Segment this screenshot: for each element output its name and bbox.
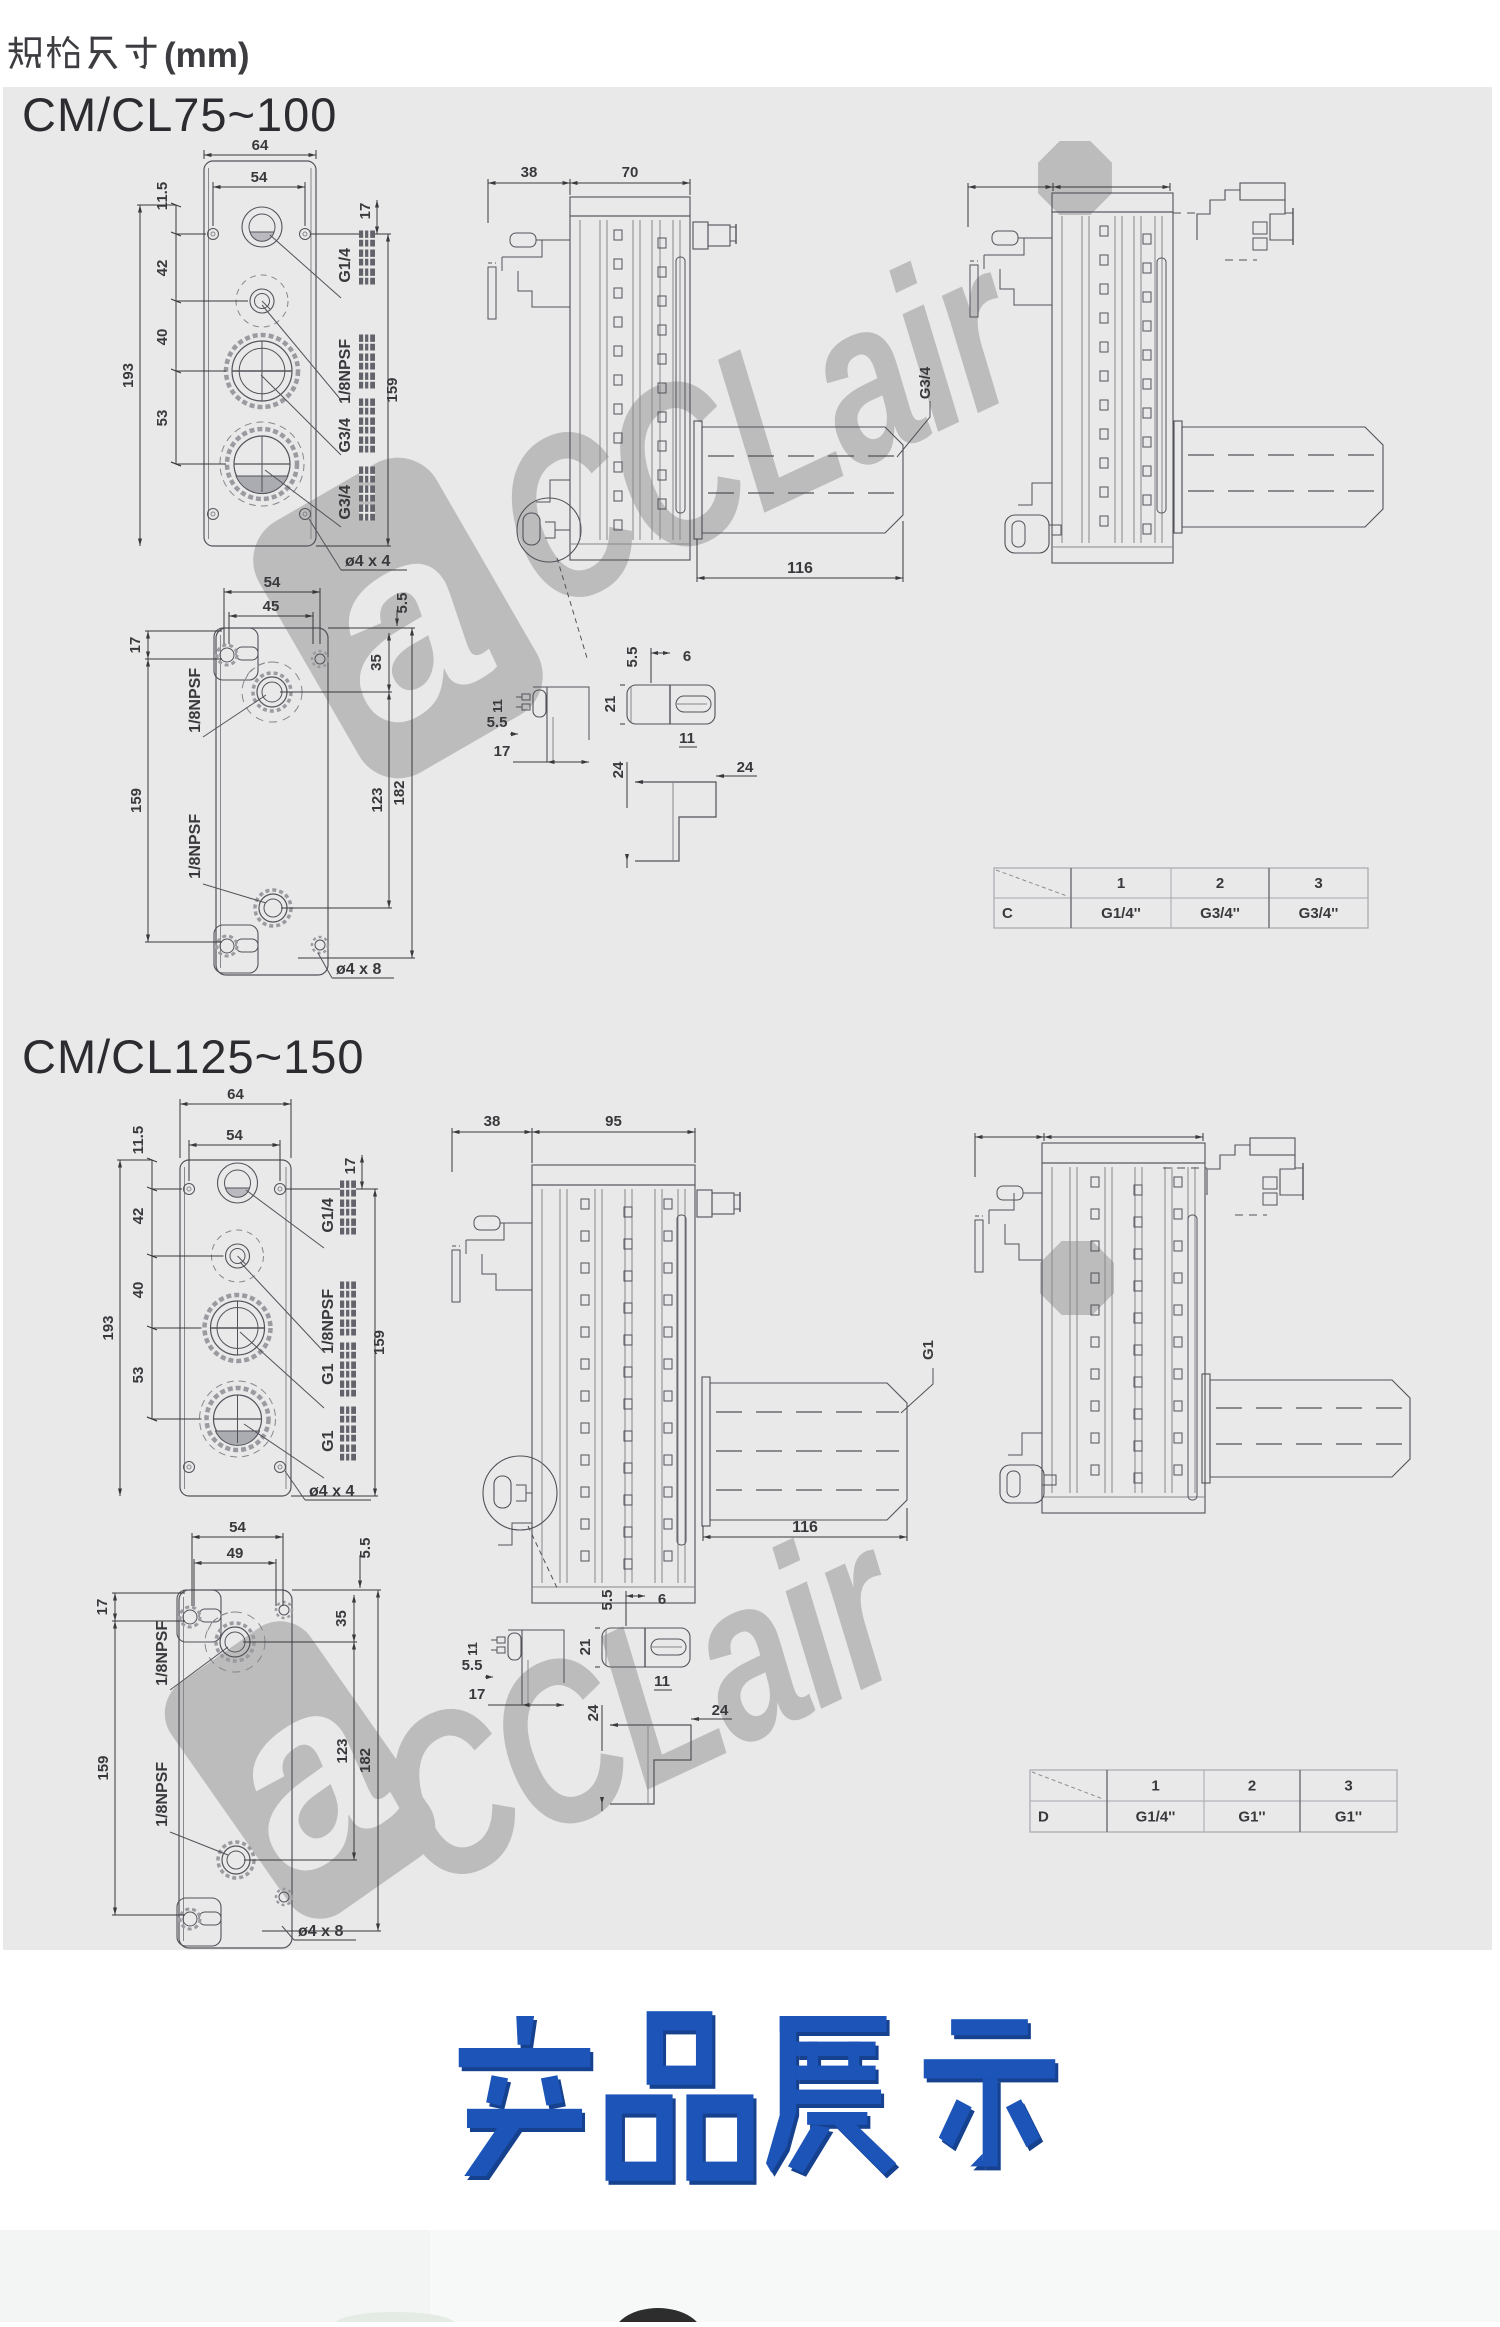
svg-text:G1'': G1'' <box>1238 1809 1265 1826</box>
svg-text:1: 1 <box>1117 875 1125 892</box>
svg-text:42: 42 <box>130 1208 147 1225</box>
svg-text:54: 54 <box>229 1519 246 1536</box>
svg-text:ø4 x 4: ø4 x 4 <box>345 553 390 570</box>
svg-text:2: 2 <box>1216 875 1224 892</box>
svg-text:G1'': G1'' <box>1335 1809 1362 1826</box>
svg-text:G1/4'': G1/4'' <box>1101 905 1141 922</box>
svg-text:ø4 x 8: ø4 x 8 <box>336 961 381 978</box>
svg-text:159: 159 <box>95 1755 112 1780</box>
svg-text:54: 54 <box>226 1127 243 1144</box>
svg-text:G3/4: G3/4 <box>337 485 354 520</box>
svg-text:G3/4'': G3/4'' <box>1299 905 1339 922</box>
svg-text:116: 116 <box>787 560 813 577</box>
svg-text:ø4 x 4: ø4 x 4 <box>309 1483 354 1500</box>
svg-text:70: 70 <box>622 164 639 181</box>
svg-text:1/8NPSF: 1/8NPSF <box>337 339 354 404</box>
svg-text:G1: G1 <box>320 1430 337 1451</box>
svg-text:2: 2 <box>1248 1778 1256 1795</box>
svg-text:G3/4: G3/4 <box>337 418 354 453</box>
svg-text:21: 21 <box>577 1639 594 1656</box>
svg-text:24: 24 <box>737 759 754 776</box>
svg-text:6: 6 <box>658 1591 666 1608</box>
svg-text:159: 159 <box>128 788 145 813</box>
svg-text:G1: G1 <box>320 1363 337 1384</box>
svg-text:1/8NPSF: 1/8NPSF <box>320 1289 337 1354</box>
svg-text:11.5: 11.5 <box>130 1126 147 1154</box>
svg-text:123: 123 <box>334 1738 351 1763</box>
svg-text:45: 45 <box>263 598 280 615</box>
svg-text:11: 11 <box>465 1642 480 1656</box>
svg-text:116: 116 <box>792 1519 818 1536</box>
svg-text:38: 38 <box>521 164 538 181</box>
svg-text:182: 182 <box>357 1748 374 1773</box>
svg-text:G1/4: G1/4 <box>337 248 354 283</box>
svg-text:24: 24 <box>610 761 627 778</box>
svg-text:D: D <box>1038 1809 1049 1826</box>
svg-text:5.5: 5.5 <box>599 1590 616 1611</box>
svg-text:1/8NPSF: 1/8NPSF <box>187 814 204 879</box>
svg-text:159: 159 <box>371 1330 388 1355</box>
svg-text:G3/4'': G3/4'' <box>1200 905 1240 922</box>
svg-text:3: 3 <box>1344 1778 1352 1795</box>
svg-text:3: 3 <box>1314 875 1322 892</box>
svg-text:123: 123 <box>369 787 386 812</box>
svg-text:24: 24 <box>585 1704 602 1721</box>
svg-text:17: 17 <box>94 1599 111 1616</box>
svg-text:11: 11 <box>654 1673 670 1690</box>
svg-text:159: 159 <box>384 377 401 402</box>
svg-text:1: 1 <box>1151 1778 1159 1795</box>
svg-text:17: 17 <box>127 637 144 654</box>
svg-text:40: 40 <box>130 1282 147 1299</box>
svg-text:G1/4'': G1/4'' <box>1136 1809 1176 1826</box>
svg-text:17: 17 <box>469 1686 486 1703</box>
svg-text:95: 95 <box>605 1113 622 1130</box>
svg-text:1/8NPSF: 1/8NPSF <box>187 668 204 733</box>
svg-text:21: 21 <box>602 696 619 713</box>
svg-text:11: 11 <box>679 730 695 747</box>
svg-text:5.5: 5.5 <box>462 1657 483 1674</box>
svg-text:1/8NPSF: 1/8NPSF <box>154 1762 171 1827</box>
svg-text:G1: G1 <box>920 1340 937 1360</box>
svg-text:17: 17 <box>342 1158 359 1175</box>
svg-text:17: 17 <box>494 743 511 760</box>
svg-text:CM/CL75~100: CM/CL75~100 <box>22 88 337 141</box>
svg-text:42: 42 <box>154 260 171 277</box>
svg-text:24: 24 <box>712 1702 729 1719</box>
svg-text:64: 64 <box>252 137 269 154</box>
svg-text:54: 54 <box>264 574 281 591</box>
svg-text:64: 64 <box>227 1086 244 1103</box>
svg-text:182: 182 <box>391 780 408 805</box>
svg-text:1/8NPSF: 1/8NPSF <box>154 1621 171 1686</box>
svg-text:5.5: 5.5 <box>487 714 508 731</box>
svg-text:(mm): (mm) <box>164 36 250 75</box>
svg-text:193: 193 <box>120 363 137 388</box>
svg-text:17: 17 <box>357 203 374 220</box>
svg-text:ø4 x 8: ø4 x 8 <box>298 1923 343 1940</box>
svg-text:35: 35 <box>333 1610 350 1627</box>
svg-text:6: 6 <box>683 648 691 665</box>
svg-text:G1/4: G1/4 <box>320 1198 337 1233</box>
svg-text:CM/CL125~150: CM/CL125~150 <box>22 1030 365 1083</box>
svg-text:5.5: 5.5 <box>624 647 641 668</box>
svg-text:35: 35 <box>368 654 385 671</box>
svg-text:11: 11 <box>490 699 505 713</box>
svg-text:49: 49 <box>227 1545 244 1562</box>
svg-text:193: 193 <box>100 1315 117 1340</box>
svg-text:53: 53 <box>130 1367 147 1384</box>
svg-text:38: 38 <box>484 1113 501 1130</box>
svg-text:C: C <box>1002 905 1013 922</box>
svg-text:11.5: 11.5 <box>154 182 171 210</box>
svg-text:54: 54 <box>251 169 268 186</box>
svg-text:G3/4: G3/4 <box>917 366 934 399</box>
svg-text:53: 53 <box>154 410 171 427</box>
svg-text:40: 40 <box>154 329 171 346</box>
